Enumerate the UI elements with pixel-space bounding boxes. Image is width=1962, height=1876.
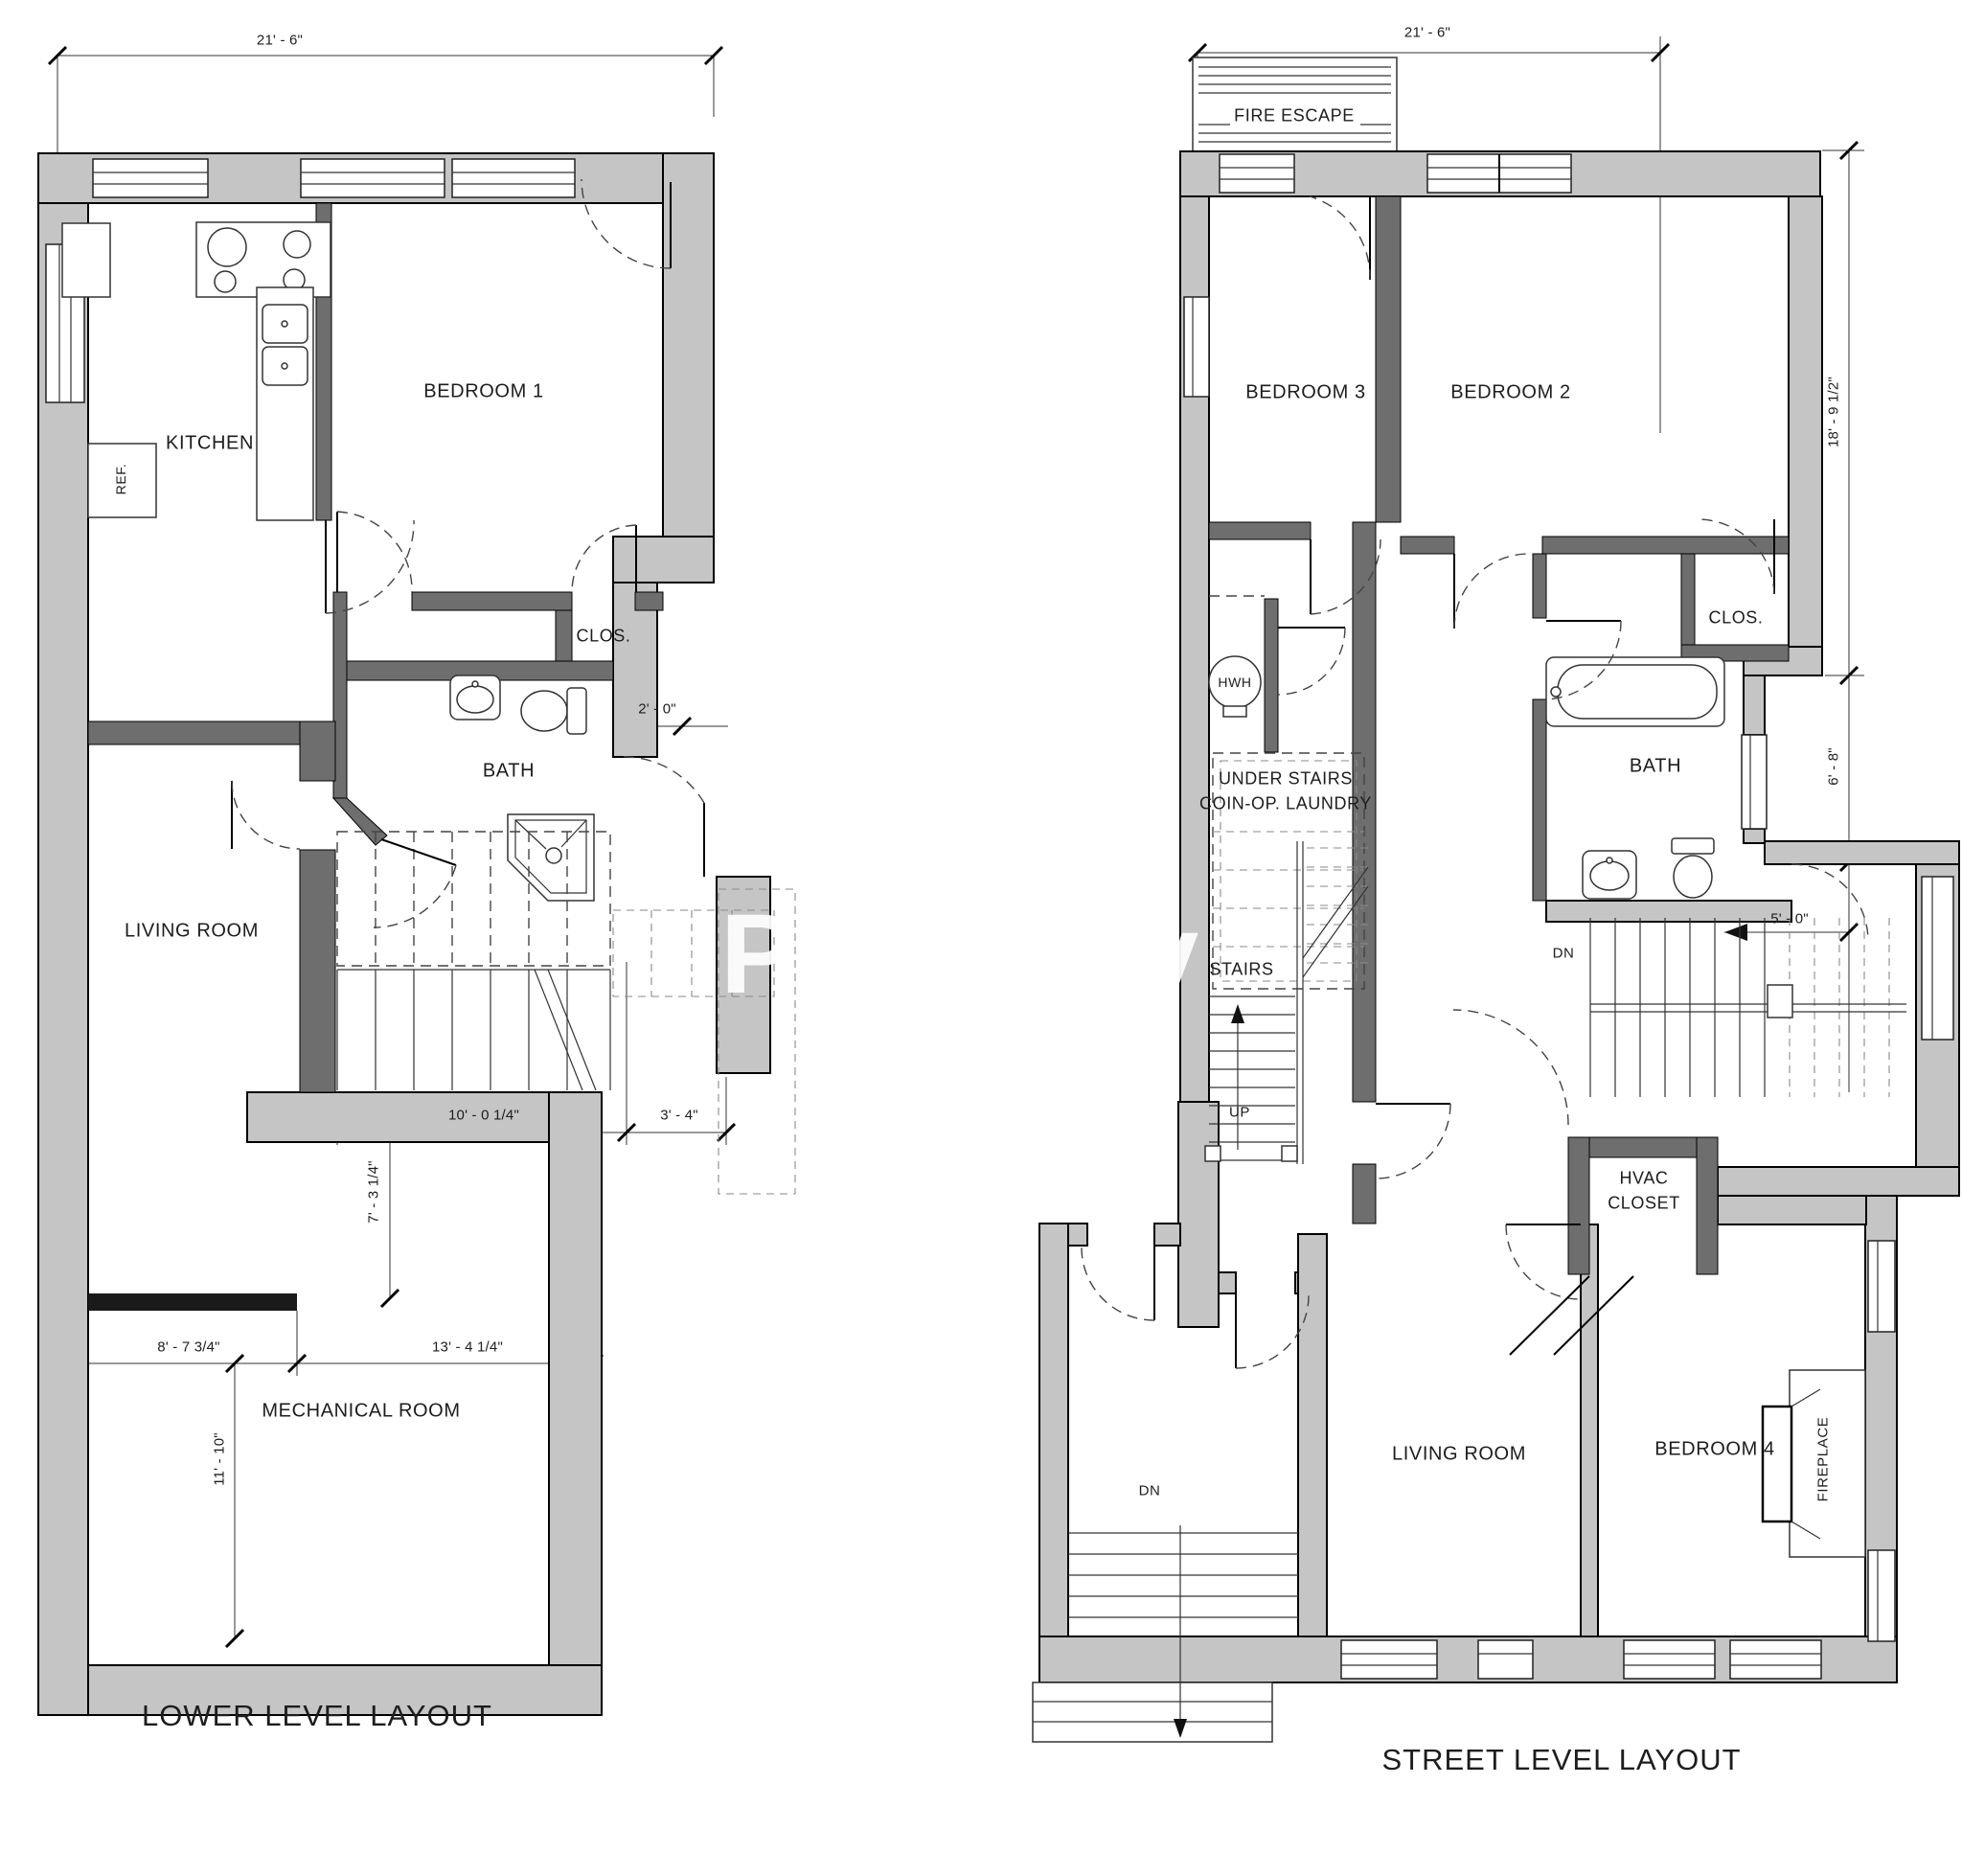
front-entry-steps <box>1033 1525 1298 1742</box>
lower-dim-mech-right: 13' - 4 1/4" <box>432 1339 503 1356</box>
laundry-label-line1: UNDER STAIRS <box>1219 769 1353 789</box>
street-toilet-icon <box>1672 838 1714 898</box>
floorplan-page: Property 21' - 6" KITCHEN REF. BEDROOM 1… <box>0 0 1962 1876</box>
lower-closet-label: CLOS. <box>576 627 630 647</box>
room-label-street-bath: BATH <box>1630 756 1681 778</box>
lower-dim-mech-left: 8' - 7 3/4" <box>157 1339 219 1356</box>
lower-plan-drawing <box>38 47 795 1715</box>
stairs-label: STAIRS <box>1209 960 1273 980</box>
street-back-stairs <box>1590 864 1906 1097</box>
shower-icon <box>508 814 594 901</box>
fire-escape-label: FIRE ESCAPE <box>1234 106 1355 126</box>
street-dim-stair-run: 5' - 0" <box>1770 911 1809 927</box>
lower-dim-stair-width: 10' - 0 1/4" <box>448 1108 519 1124</box>
stove-icon <box>196 222 331 297</box>
lower-toilet-icon <box>521 688 586 734</box>
room-label-mechanical: MECHANICAL ROOM <box>262 1401 460 1423</box>
room-label-street-living: LIVING ROOM <box>1392 1444 1526 1466</box>
bathtub-icon <box>1546 657 1724 726</box>
lower-dim-bath-recess: 2' - 0" <box>638 701 676 718</box>
room-label-lower-bath: BATH <box>483 761 535 783</box>
ref-label: REF. <box>113 464 128 495</box>
street-dim-bath-depth: 6' - 8" <box>1826 747 1842 786</box>
fireplace <box>1763 1370 1865 1557</box>
room-label-kitchen: KITCHEN <box>166 433 254 455</box>
dn-front-label: DN <box>1139 1483 1161 1499</box>
street-dim-overall-width: 21' - 6" <box>1404 25 1450 41</box>
street-plan-title: STREET LEVEL LAYOUT <box>1381 1743 1741 1777</box>
laundry-label-line2: COIN-OP. LAUNDRY <box>1199 794 1372 814</box>
fireplace-label: FIREPLACE <box>1815 1417 1832 1502</box>
hvac-label-line1: HVAC <box>1619 1169 1668 1189</box>
up-label: UP <box>1229 1105 1250 1121</box>
room-label-bedroom1: BEDROOM 1 <box>423 381 543 403</box>
lower-plan-title: LOWER LEVEL LAYOUT <box>142 1699 492 1733</box>
lower-dim-stair-offset: 3' - 4" <box>660 1108 698 1124</box>
street-interior-walls <box>1209 196 1789 1274</box>
room-label-lower-living: LIVING ROOM <box>125 921 259 943</box>
lower-dim-overall-width: 21' - 6" <box>257 33 303 49</box>
lower-dim-stair-depth: 7' - 3 1/4" <box>366 1160 382 1223</box>
room-label-bedroom2: BEDROOM 2 <box>1450 382 1570 404</box>
dn-back-label: DN <box>1553 946 1575 962</box>
watermark: Property <box>720 889 1200 1019</box>
fire-escape <box>1193 57 1397 151</box>
hwh-label: HWH <box>1218 675 1251 690</box>
street-closet-label: CLOS. <box>1708 608 1763 629</box>
street-dim-upper-depth: 18' - 9 1/2" <box>1826 377 1842 447</box>
lower-dim-mech-depth: 11' - 10" <box>212 1432 228 1486</box>
room-label-bedroom4: BEDROOM 4 <box>1654 1439 1774 1461</box>
lower-bath-sink-icon <box>450 675 500 720</box>
street-bath-sink-icon <box>1583 851 1636 899</box>
hvac-label-line2: CLOSET <box>1608 1194 1680 1214</box>
room-label-bedroom3: BEDROOM 3 <box>1245 382 1365 404</box>
